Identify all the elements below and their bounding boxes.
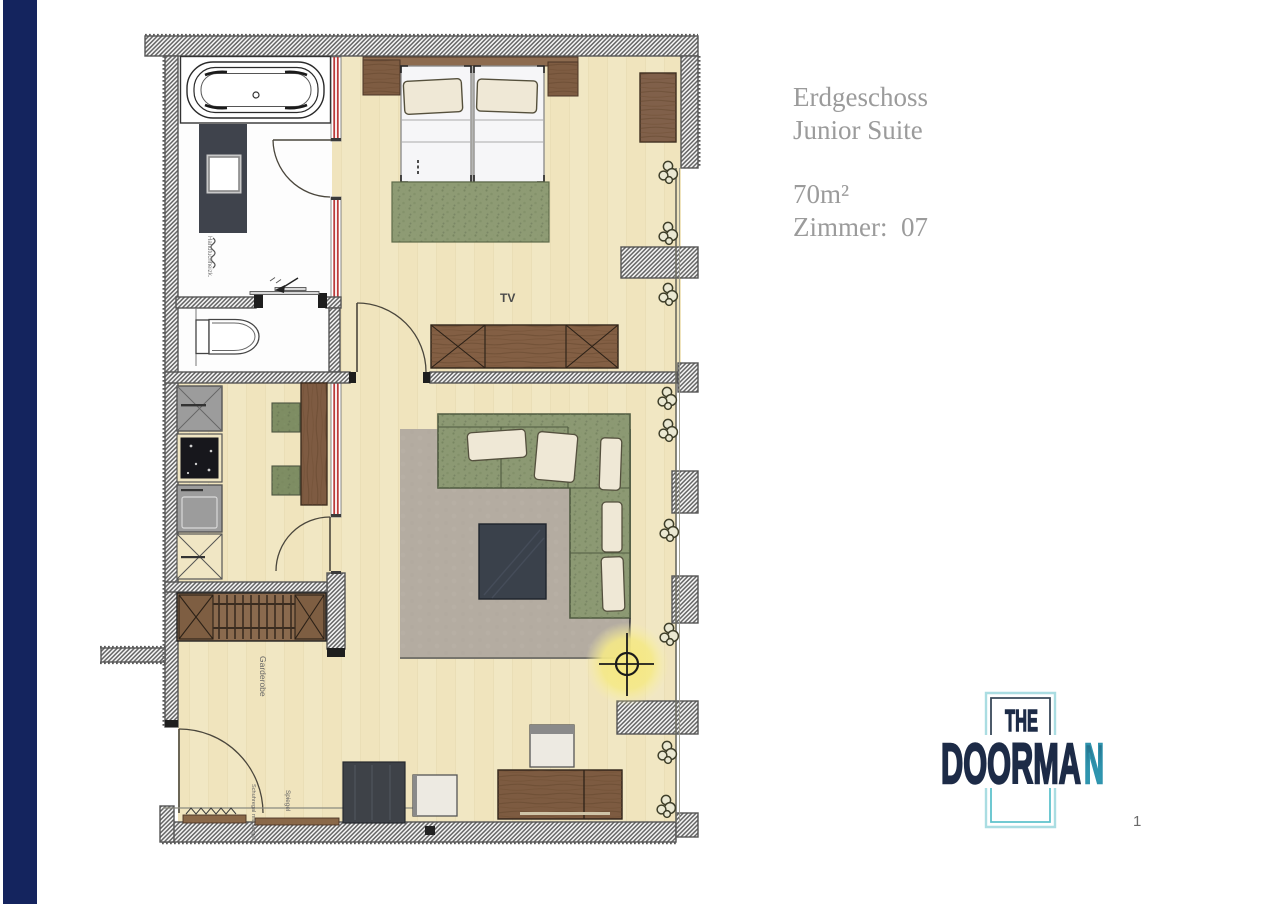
svg-text:Junior Suite: Junior Suite (793, 115, 923, 145)
svg-text:Zimmer: 07: Zimmer: 07 (793, 212, 928, 242)
svg-text:Handtuchheizk.: Handtuchheizk. (206, 236, 212, 278)
svg-text:1: 1 (1133, 813, 1141, 830)
svg-text:DOORMA: DOORMA (941, 732, 1081, 796)
svg-text:Garderobe: Garderobe (258, 656, 268, 697)
svg-text:Schuhregal mit Sitzgel.: Schuhregal mit Sitzgel. (250, 784, 256, 842)
svg-text:TV: TV (500, 291, 515, 305)
svg-text:Spiegel: Spiegel (284, 790, 291, 811)
svg-text:Erdgeschoss: Erdgeschoss (793, 82, 928, 112)
svg-text:N: N (1084, 732, 1104, 796)
svg-text:70m²: 70m² (793, 179, 849, 209)
